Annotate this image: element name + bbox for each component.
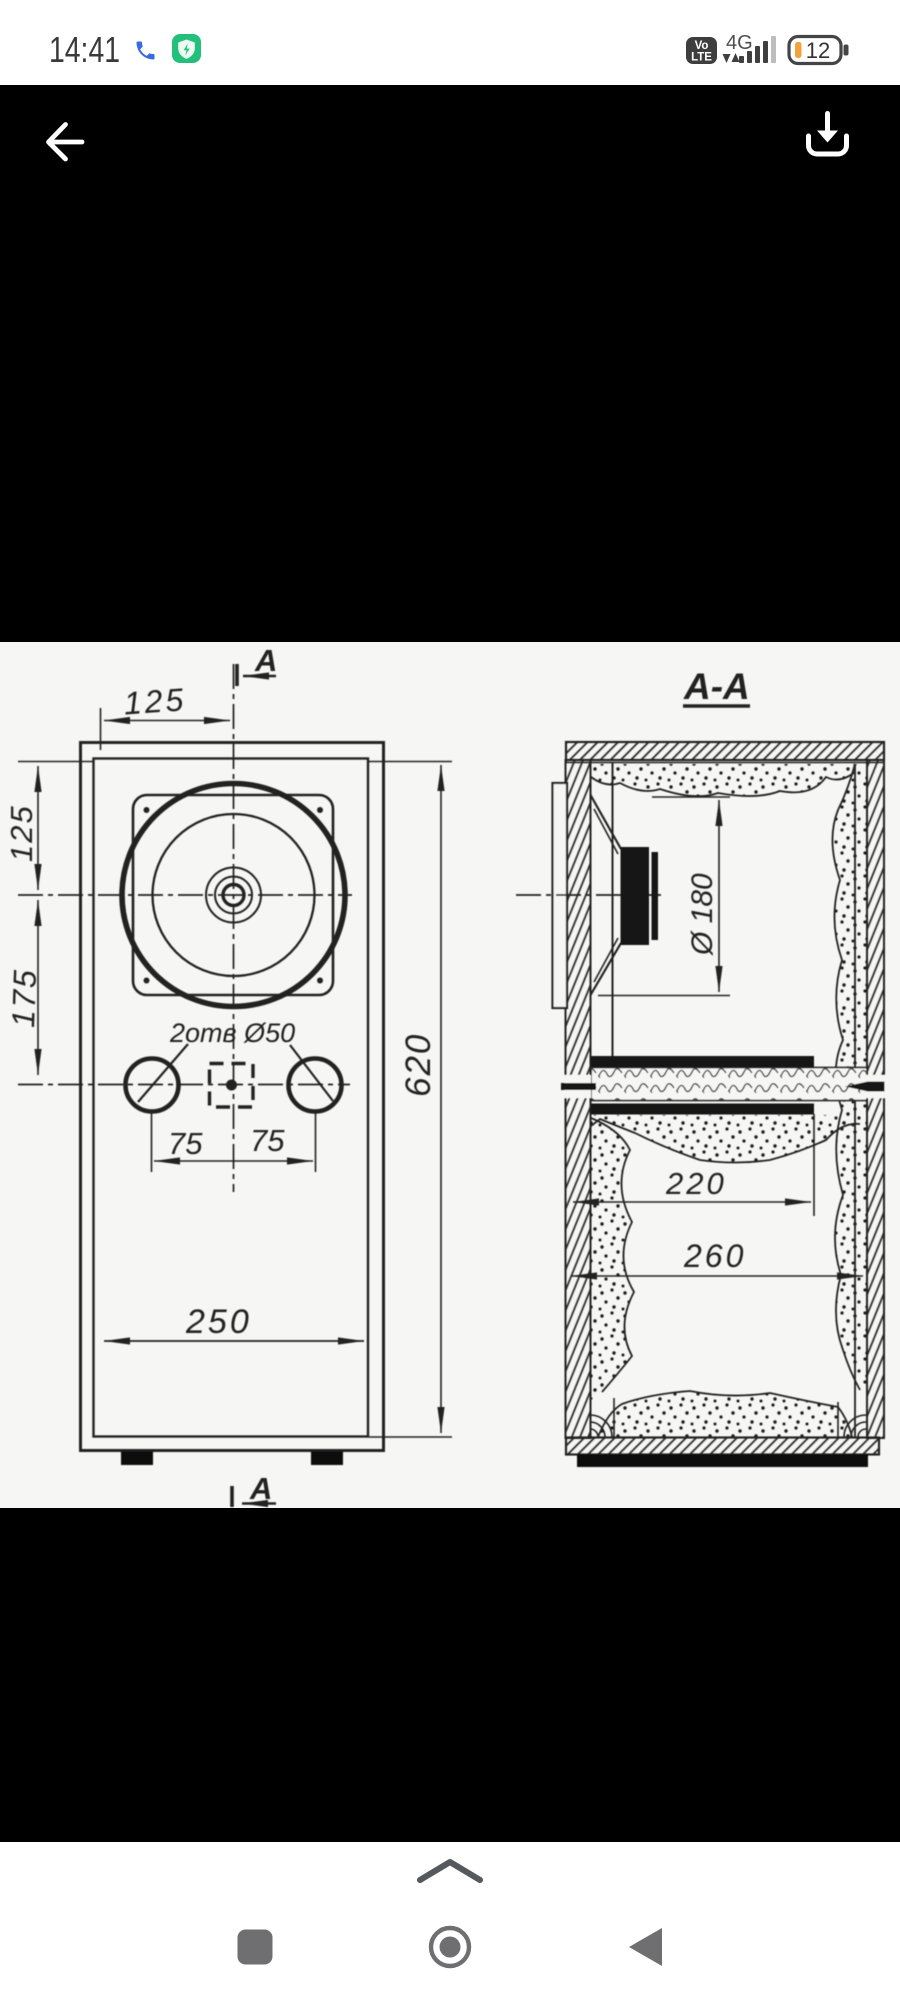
svg-text:175: 175 [5, 968, 43, 1029]
svg-text:2отв Ø50: 2отв Ø50 [169, 1018, 295, 1048]
svg-text:125: 125 [4, 804, 39, 862]
svg-text:12: 12 [806, 38, 830, 63]
svg-text:A-A: A-A [683, 666, 750, 707]
svg-text:75: 75 [168, 1126, 203, 1161]
svg-text:4G: 4G [726, 32, 753, 54]
svg-text:Vo: Vo [695, 40, 709, 52]
svg-text:125: 125 [123, 681, 188, 721]
svg-text:620: 620 [399, 1033, 438, 1097]
svg-text:A: A [254, 643, 277, 678]
svg-text:LTE: LTE [691, 52, 712, 64]
svg-text:75: 75 [250, 1123, 285, 1158]
svg-text:A: A [249, 1471, 272, 1506]
svg-text:250: 250 [185, 1303, 252, 1341]
svg-text:260: 260 [683, 1238, 746, 1274]
svg-text:Ø 180: Ø 180 [686, 873, 719, 956]
svg-text:14:41: 14:41 [49, 29, 120, 70]
svg-text:220: 220 [665, 1166, 727, 1201]
